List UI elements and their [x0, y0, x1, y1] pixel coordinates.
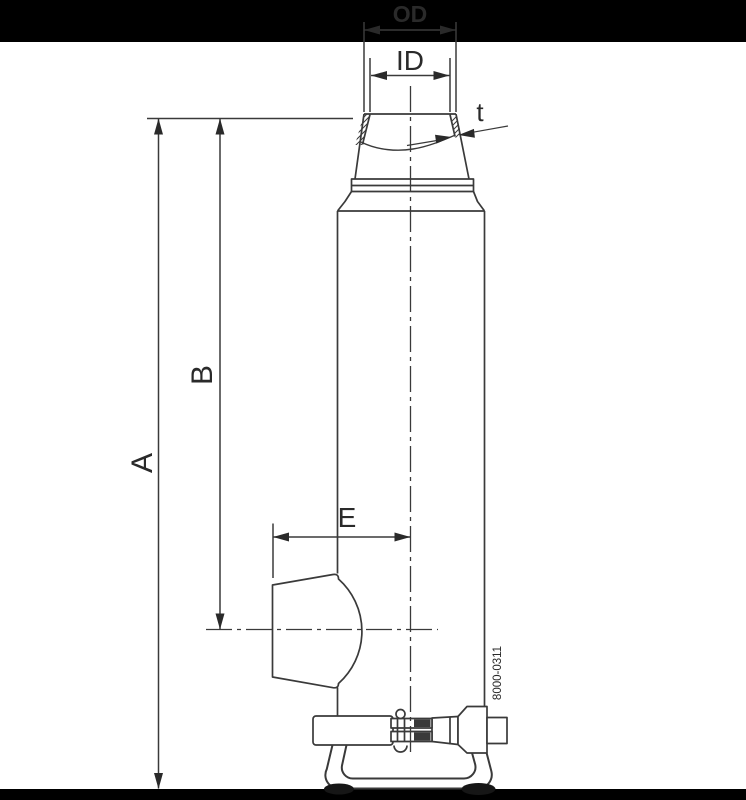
clamp-right-arm [432, 717, 458, 745]
letterbox-bottom [0, 789, 746, 800]
label-id: ID [396, 45, 424, 76]
bolt-thread-upper [414, 720, 431, 728]
letterbox-top [0, 0, 746, 42]
drawing-canvas: OD ID t E A B 8000-0311 [0, 0, 746, 800]
label-b: B [186, 365, 219, 385]
part-number: 8000-0311 [492, 646, 504, 700]
clamp-wing-lug [458, 707, 487, 754]
outlet-branch [273, 574, 362, 687]
hinge-hook [394, 746, 407, 753]
clamp-end-block [487, 718, 507, 744]
hinge-knob [396, 710, 405, 719]
shadow-right [462, 783, 496, 795]
label-t: t [476, 97, 484, 127]
label-a: A [126, 453, 159, 473]
label-e: E [338, 502, 357, 533]
label-od: OD [393, 1, 428, 27]
shadow-left [324, 784, 354, 795]
technical-drawing: OD ID t E A B 8000-0311 [0, 0, 746, 800]
drawing-background [0, 0, 746, 800]
bolt-thread-lower [414, 733, 431, 741]
clamp-band [313, 716, 393, 745]
